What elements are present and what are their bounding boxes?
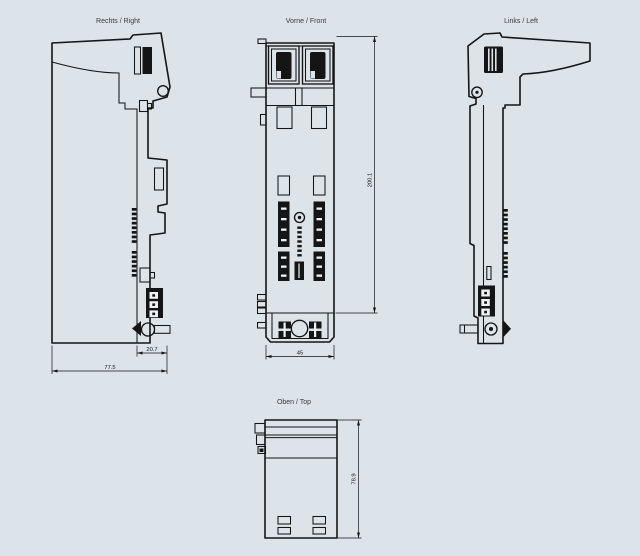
clip-lower: [140, 268, 150, 282]
top-view-title: Oben / Top: [277, 399, 311, 406]
led-slot-left: [278, 176, 290, 195]
side-slot-window: [155, 168, 164, 190]
terminal-block-right-lower: [314, 252, 326, 282]
rail-screw: [291, 320, 307, 336]
center-post: [296, 88, 303, 106]
head-port-frame: [135, 47, 141, 74]
rail-clip-left: [279, 322, 292, 339]
dimensional-drawing-svg: Rechts / Right Vorne / Front Links / Lef…: [0, 0, 640, 556]
rail-clip-right: [309, 322, 322, 339]
window-right: [312, 107, 327, 129]
dim-top-depth: 78.9: [337, 420, 362, 538]
front-view: 45 200.1: [251, 37, 378, 360]
right-side-view: 20.7 77.5: [52, 33, 170, 374]
dim-value-depth: 78.9: [352, 473, 358, 484]
mounting-hole-bottom: [142, 323, 155, 336]
vent-slots: [503, 209, 508, 278]
front-view-title: Vorne / Front: [286, 18, 327, 25]
top-tab-2: [257, 435, 266, 445]
dim-front-width: 45: [266, 345, 334, 360]
bus-connector-left: [269, 46, 300, 84]
clip-upper: [140, 101, 148, 112]
power-connector-3pin: [478, 286, 495, 317]
dim-value-total-depth: 77.5: [104, 365, 115, 371]
dim-value-width: 45: [297, 350, 303, 356]
rear-hook-tab: [258, 39, 266, 44]
front-left-teeth: [258, 295, 267, 329]
center-bottom-block: [295, 262, 305, 281]
rail-bar: [460, 325, 478, 333]
left-protrusion: [251, 88, 266, 97]
top-view-slots: [278, 517, 326, 535]
top-tab-1: [255, 424, 265, 434]
left-clip-small: [261, 115, 267, 126]
bus-connector-right: [303, 46, 334, 84]
dim-front-height: 200.1: [336, 37, 378, 314]
terminal-block-left-lower: [278, 252, 290, 282]
vent-slots: [132, 208, 137, 277]
terminal-block-right-upper: [314, 202, 326, 248]
side-slot-small: [487, 267, 491, 280]
rail-bar: [155, 326, 171, 334]
led-slot-right: [314, 176, 326, 195]
window-left: [277, 107, 292, 129]
left-view-title: Links / Left: [504, 18, 538, 25]
head-connector: [484, 47, 503, 74]
mounting-hole-top-dot: [475, 91, 478, 94]
rail-latch: [504, 321, 512, 338]
top-view-seams: [265, 427, 337, 458]
dim-right-rear-depth: 20.7: [137, 346, 167, 375]
power-connector-3pin: [146, 288, 163, 318]
right-view-title: Rechts / Right: [96, 18, 140, 25]
left-side-view: [460, 33, 590, 344]
label-strip-marks: [297, 227, 301, 257]
top-tab-3-mark: [260, 449, 264, 453]
mounting-hole-top: [158, 86, 169, 97]
top-view: 78.9: [255, 420, 362, 538]
technical-drawing-canvas: Rechts / Right Vorne / Front Links / Lef…: [0, 0, 640, 556]
mounting-hole-bottom-dot: [489, 327, 493, 331]
center-screw-dot: [298, 216, 301, 219]
dim-value-height: 200.1: [368, 173, 374, 188]
head-port-slot: [143, 47, 153, 74]
dim-value-rear-depth: 20.7: [146, 347, 157, 353]
front-mid-seam: [266, 88, 334, 106]
front-cover-seam: [52, 62, 137, 343]
terminal-block-left-upper: [278, 202, 290, 248]
